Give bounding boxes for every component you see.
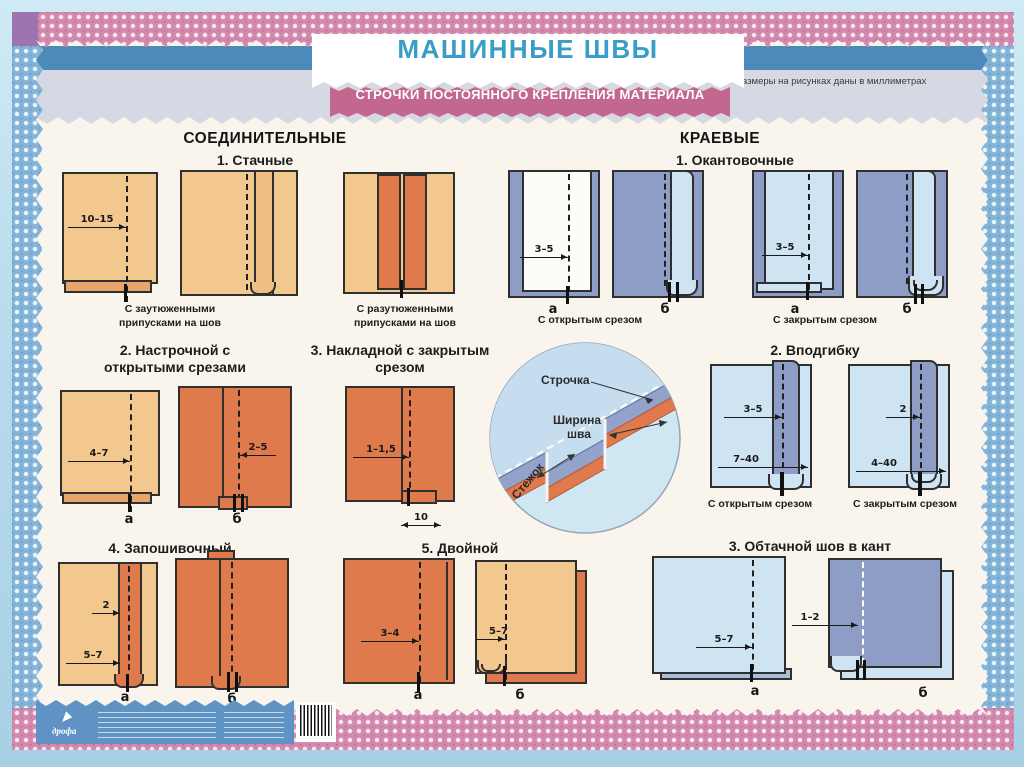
diagram-stachnye-pressed-open [343,172,455,294]
layer-edge [222,386,224,508]
stitch-line [568,174,570,292]
diagram-okantovochny-closed-b: б [856,170,948,298]
dimension-label: 1–2 [792,612,828,623]
dimension: 2–5 [240,440,276,456]
section-nastrochnoy-title: 2. Настрочной с открытыми срезами [85,342,265,376]
fabric-layer [343,558,455,684]
diagram-obtachnoy-b: 1–2 б [828,558,956,682]
dimension: 3–5 [724,402,782,418]
tick-mark [128,494,131,512]
diagram-dvoynoy-b: 5–7 б [475,560,587,684]
dimension: 10 [401,510,441,526]
stitch-line [231,562,233,682]
diagram-stachnye-folded [180,170,298,296]
fabric-layer [764,170,834,290]
fold-curl [768,474,804,490]
dimension-line [718,467,808,468]
imprint-fine-print [98,712,216,738]
diagram-nakladnoy: 1–1,5 10 [345,386,455,502]
fabric-layer [475,560,577,674]
dimension-label: 5–7 [66,650,120,661]
dimension: 1–2 [792,610,858,626]
tick-mark [241,494,244,512]
dimension-line [361,641,419,642]
dimension-line [724,417,782,418]
tick-mark [233,494,236,512]
stitch-line [128,566,130,680]
dimension-line [696,647,752,648]
inset-label-shirina: Ширина [553,413,601,427]
dimension: 3–5 [762,240,808,256]
dimension-line [475,639,505,640]
dimension: 1–1,5 [353,442,409,458]
diagram-okantovochny-closed-a: 3–5 а [752,170,844,298]
dimension: 5–7 [475,624,505,640]
stitch-line [246,174,248,290]
tick-mark [750,664,753,682]
stitch-line [906,174,908,284]
tick-mark [914,284,917,304]
caption-closed-cut: С закрытым срезом [745,314,905,328]
section-nakladnoy-title: 3. Накладной с закрытым срезом [310,342,490,376]
layer-edge [446,562,448,680]
dimension: 2 [92,598,120,614]
dimension: 4–7 [68,446,130,462]
dimension: 5–7 [66,648,120,664]
caption-open-cut: С открытым срезом [510,314,670,328]
fabric-layer [58,562,158,686]
fabric-layer [60,390,160,496]
stitch-line [664,174,666,286]
fabric-layer [62,172,158,284]
tick-mark [918,472,922,496]
binding-strip [670,170,694,290]
section-okantovochnye-title: 1. Окантовочные [560,152,910,169]
diagram-nastrochnoy-b: 2–5 б [178,386,292,508]
variant-letter: а [744,684,766,699]
right-column-header: КРАЕВЫЕ [540,130,900,148]
tick-mark [863,660,866,680]
fold-flap [118,562,142,686]
dimension: 7–40 [718,452,808,468]
diagram-zaposhivochny-b: б [175,558,289,688]
variant-letter: б [509,688,531,703]
dimension-line [401,525,441,526]
stitch-line [752,560,754,670]
diagram-obtachnoy-a: 5–7 а [652,556,790,684]
seam-allowance [403,174,427,290]
fabric-layer [180,170,298,296]
variant-letter: а [118,512,140,527]
seam-allowance [377,174,401,290]
dimension: 3–4 [361,626,419,642]
poster-subtitle: СТРОЧКИ ПОСТОЯННОГО КРЕПЛЕНИЯ МАТЕРИАЛА [330,87,730,102]
fold-curl [114,674,144,688]
stitch-line [808,174,810,290]
dimension-line [92,613,120,614]
section-vpodgibku-title: 2. Вподгибку [720,342,910,359]
variant-letter: б [226,512,248,527]
section-obtachnoy-title: 3. Обтачной шов в кант [690,538,930,555]
dimension-line [240,455,276,456]
dimension-line [762,255,808,256]
dimension: 2 [886,402,920,418]
drofa-bird-icon [59,710,72,722]
tick-mark [124,284,127,302]
dimension-line [66,663,120,664]
stitch-line [862,562,864,664]
dimension-label: 1–1,5 [353,444,409,455]
tick-mark [407,488,410,506]
dimension-line [792,625,858,626]
binding-strip [912,170,936,288]
dimension-label: 4–7 [68,448,130,459]
tick-mark [503,666,506,686]
publisher-logo: дрофа [52,726,76,736]
binding-strip [756,282,822,293]
section-stachnye-title: 1. Стачные [90,152,420,169]
diagram-vpodgibku-closed: 2 4–40 [848,364,950,488]
imprint-fine-print [224,712,284,738]
seam-terminology-inset: Строчка Ширина шва Стежок [487,340,683,536]
caption-razutyuzhennye: С разутюженными припусками на шов [330,303,480,330]
dimension-line [856,471,946,472]
inset-label-shva: шва [567,427,591,441]
tick-mark [856,660,859,680]
fold-flap [254,170,274,296]
dimension-label: 5–7 [696,634,752,645]
dimension-line [68,461,130,462]
variant-letter: а [407,688,429,703]
left-column-header: СОЕДИНИТЕЛЬНЫЕ [90,130,440,148]
barcode-bars [300,705,332,736]
layer-edge [219,558,221,688]
tick-mark [227,672,230,692]
tick-mark [400,280,403,298]
publisher-band: дрофа [36,700,294,744]
dimension-line [353,457,409,458]
title-banner: МАШИННЫЕ ШВЫ [312,34,744,88]
barcode [296,702,336,742]
diagram-stachnye-pressed-one-side: 10–15 [62,172,158,296]
dimension-label: 4–40 [856,458,912,469]
dimension: 4–40 [856,456,946,472]
diagram-okantovochny-open-b: б [612,170,704,298]
dimension: 5–7 [696,632,752,648]
dimension-line [886,417,920,418]
diagram-nastrochnoy-a: 4–7 а [60,390,160,506]
tick-mark [668,282,671,302]
caption-vpodgibku-open: С открытым срезом [695,498,825,512]
stitch-line [419,562,421,682]
tick-mark [566,286,569,304]
tick-mark [676,282,679,302]
frame-corner-block [12,12,38,48]
dimension-line [68,227,126,228]
fabric-layer [522,170,592,292]
dimension: 3–5 [520,242,568,258]
poster-title: МАШИННЫЕ ШВЫ [312,34,744,65]
caption-zautyuzhennye: С заутюженными припусками на шов [95,303,245,330]
poster-page: Размеры на рисунках даны в миллиметрах С… [0,0,1024,767]
fabric-layer [62,492,152,504]
tick-mark [806,282,809,300]
diagram-dvoynoy-a: 3–4 а [343,558,455,684]
section-dvoynoy-title: 5. Двойной [390,540,530,557]
tick-mark [780,472,784,496]
fabric-layer [64,280,152,293]
tick-mark [921,284,924,304]
units-note: Размеры на рисунках даны в миллиметрах [736,76,986,87]
dimension-line [520,257,568,258]
tick-mark [235,672,238,692]
dimension-label: 7–40 [718,454,774,465]
dimension-label: 3–4 [361,628,419,639]
diagram-vpodgibku-open: 3–5 7–40 [710,364,812,488]
fabric-layer [652,556,786,674]
caption-vpodgibku-closed: С закрытым срезом [835,498,975,512]
variant-letter: б [912,686,934,701]
subtitle-banner: СТРОЧКИ ПОСТОЯННОГО КРЕПЛЕНИЯ МАТЕРИАЛА [330,87,730,117]
dimension: 10–15 [68,212,126,228]
content-sheet: Размеры на рисунках даны в миллиметрах С… [36,40,988,716]
dimension-label: 10–15 [68,214,126,225]
stitch-line [409,390,411,498]
dimension-label: 3–5 [724,404,782,415]
diagram-zaposhivochny-a: 2 5–7 а [58,562,158,686]
inset-label-strochka: Строчка [541,373,590,387]
diagram-okantovochny-open-a: 3–5 а [508,170,600,298]
